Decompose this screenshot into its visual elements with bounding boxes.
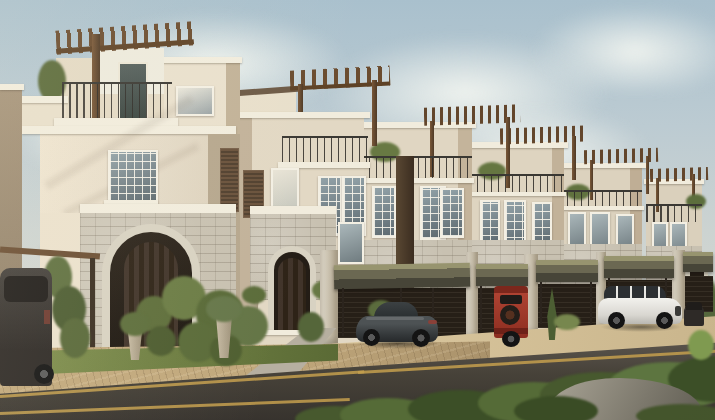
awning-post xyxy=(480,286,482,330)
red-jeep-rear-window xyxy=(500,295,522,304)
white-suv-wheel xyxy=(608,312,625,329)
dark-suv-taillight xyxy=(44,310,50,324)
hedge xyxy=(514,396,598,420)
building-1-roof-parapet xyxy=(160,57,242,63)
parapet-cap xyxy=(20,96,68,103)
ledge xyxy=(360,178,474,183)
wall-cap xyxy=(0,84,24,90)
louvered-shutter xyxy=(220,148,239,212)
pergola-post xyxy=(506,117,510,169)
white-suv-wheel xyxy=(656,312,673,329)
ledge xyxy=(468,192,566,196)
building-6-railing xyxy=(646,204,702,222)
window xyxy=(372,186,396,238)
sports-car-wheel xyxy=(412,329,430,347)
red-jeep-spare-tire xyxy=(500,305,520,325)
townhouse-render-scene xyxy=(0,0,715,420)
stone-cap xyxy=(250,206,336,214)
white-suv-grille xyxy=(675,306,681,316)
dark-suv-wheel xyxy=(34,364,54,384)
small-dark-car xyxy=(684,300,704,330)
ledge xyxy=(558,206,644,210)
pot-plant xyxy=(206,296,242,322)
dark-suv-window xyxy=(4,276,48,302)
awning-post xyxy=(342,288,344,336)
carport-awning xyxy=(604,256,674,278)
dark-suv xyxy=(0,246,56,392)
building-2-parapet xyxy=(230,112,370,118)
building-1-window xyxy=(108,150,158,204)
window xyxy=(440,188,464,238)
pot-plant xyxy=(120,312,150,336)
small-dark-car-roof xyxy=(686,302,702,310)
sports-car-taillight xyxy=(428,320,437,324)
sports-car-wheel xyxy=(363,329,380,346)
window xyxy=(338,222,364,264)
pergola-post xyxy=(372,80,377,146)
topiary-ball xyxy=(146,326,176,356)
building-1-roof-block-shade xyxy=(226,62,240,134)
sports-car xyxy=(354,300,442,352)
carport-awning xyxy=(683,252,713,272)
awning-post xyxy=(590,282,592,324)
shrub xyxy=(298,312,324,342)
pergola-post xyxy=(572,136,576,180)
carport-awning xyxy=(536,260,598,282)
red-jeep-roof xyxy=(494,286,528,293)
climbing-shrub xyxy=(60,318,90,358)
pot-plant xyxy=(242,286,266,304)
flowering-bush xyxy=(554,314,580,330)
red-jeep-wheel xyxy=(502,331,520,347)
white-suv xyxy=(596,284,684,334)
stone-cap xyxy=(80,204,236,213)
pergola-post xyxy=(646,156,649,194)
grass-tuft xyxy=(688,330,714,360)
sports-car-highlight xyxy=(366,317,424,320)
left-carport-post xyxy=(90,258,95,358)
awning-post xyxy=(540,282,542,324)
red-jeep xyxy=(492,278,532,348)
carport-awning xyxy=(334,263,470,289)
cloud xyxy=(530,5,715,90)
